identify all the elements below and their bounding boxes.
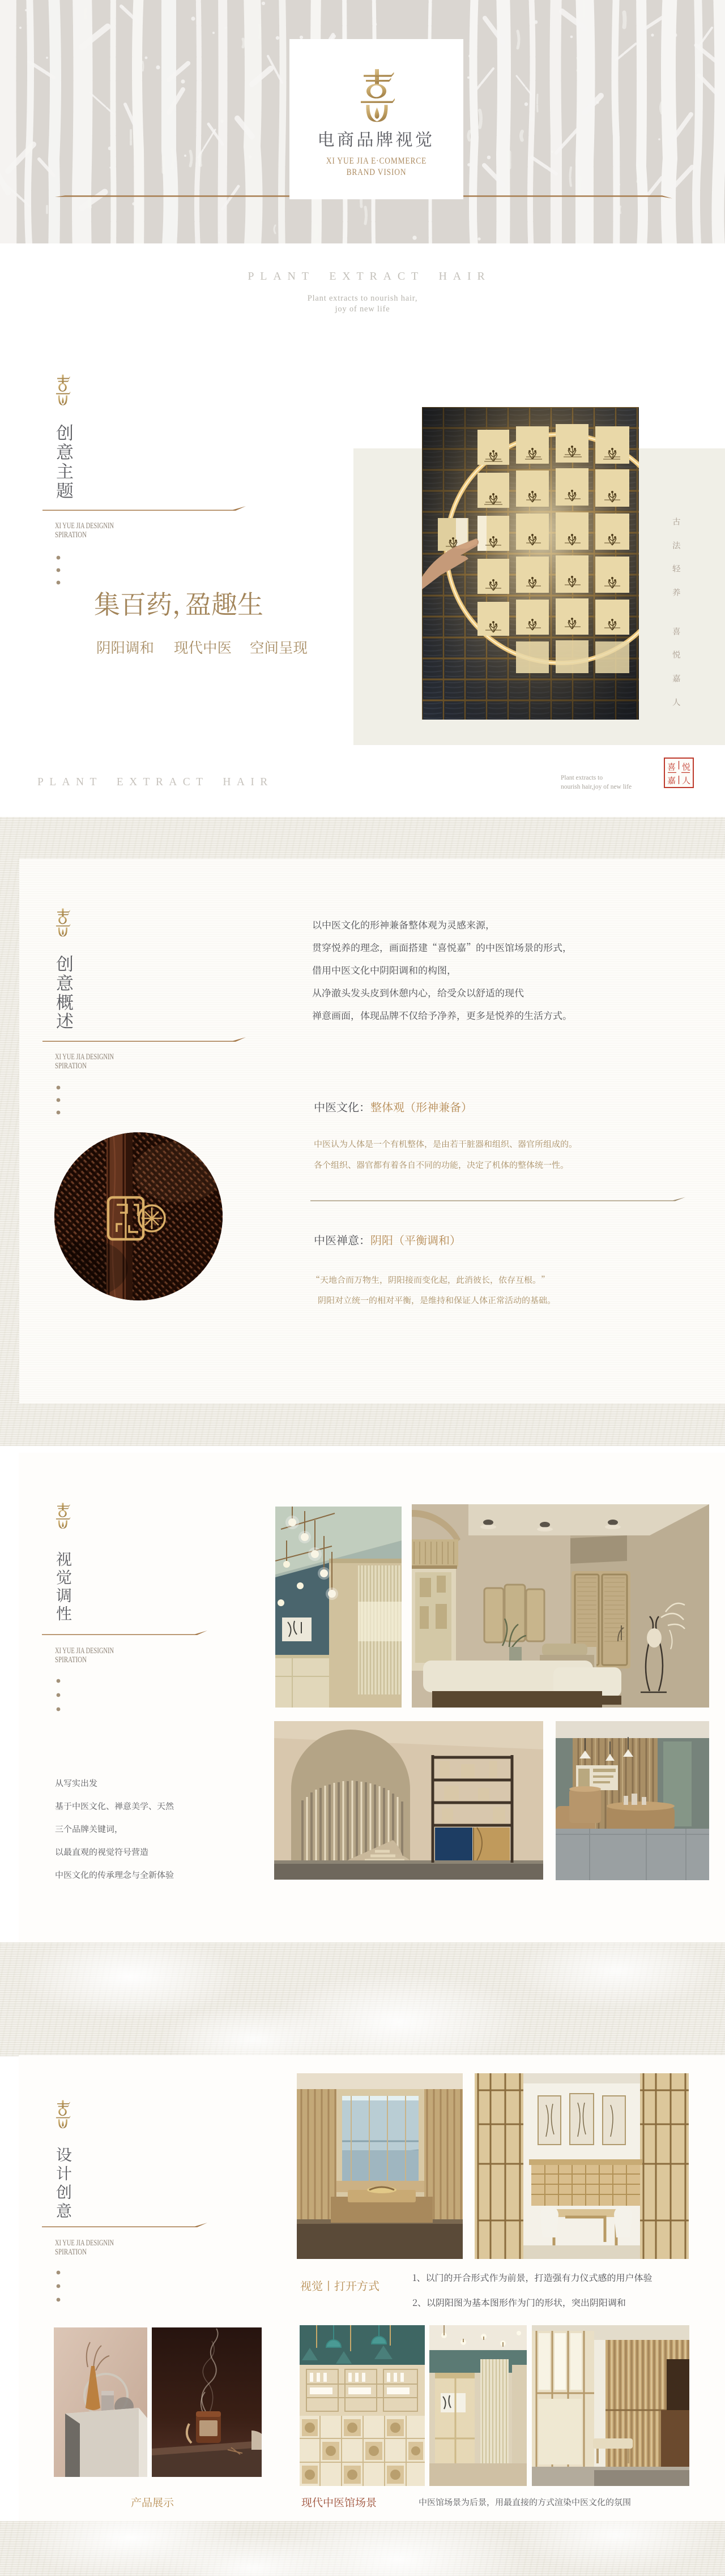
svg-text:XI YUE JIA DESIGNIN: XI YUE JIA DESIGNIN (55, 521, 114, 530)
svg-text:XI YUE JIA DESIGNIN: XI YUE JIA DESIGNIN (55, 1646, 114, 1655)
svg-text:SPIRATION: SPIRATION (55, 530, 87, 540)
svg-text:SPIRATION: SPIRATION (55, 1062, 87, 1071)
svg-text:XI YUE JIA DESIGNIN: XI YUE JIA DESIGNIN (55, 2239, 114, 2248)
svg-text:XI YUE JIA DESIGNIN: XI YUE JIA DESIGNIN (55, 1052, 114, 1062)
svg-text:SPIRATION: SPIRATION (55, 2248, 87, 2257)
svg-text:SPIRATION: SPIRATION (55, 1655, 87, 1664)
